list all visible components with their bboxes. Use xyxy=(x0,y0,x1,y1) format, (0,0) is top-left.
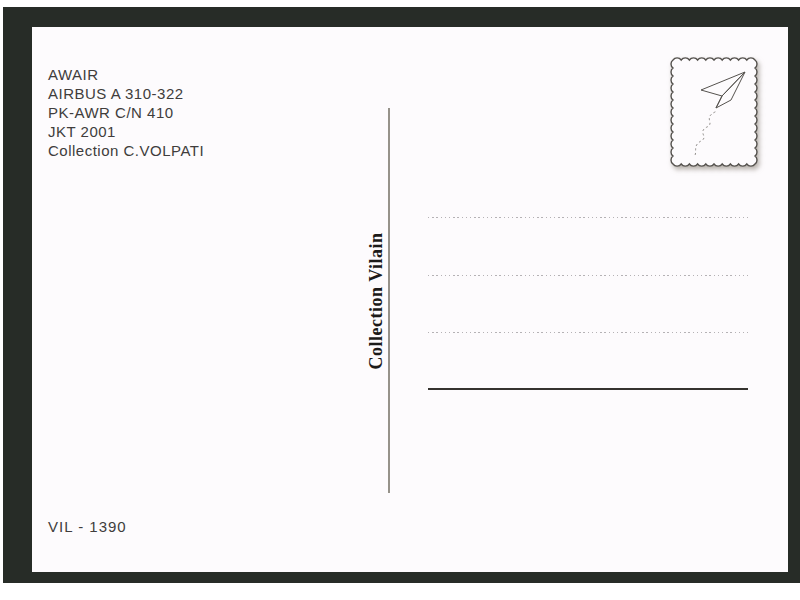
postcard-back: AWAIR AIRBUS A 310-322 PK-AWR C/N 410 JK… xyxy=(32,27,788,572)
address-line-1 xyxy=(428,217,748,219)
registration-number: PK-AWR C/N 410 xyxy=(48,103,204,122)
vertical-divider-line xyxy=(388,108,390,493)
postcard-photo: AWAIR AIRBUS A 310-322 PK-AWR C/N 410 JK… xyxy=(0,0,800,600)
publisher-label: Collection Vilain xyxy=(365,201,387,401)
address-bottom-line xyxy=(428,388,748,390)
paper-airplane-icon xyxy=(665,52,763,172)
location-year: JKT 2001 xyxy=(48,122,204,141)
aircraft-type: AIRBUS A 310-322 xyxy=(48,84,204,103)
address-line-3 xyxy=(428,332,748,334)
caption-block: AWAIR AIRBUS A 310-322 PK-AWR C/N 410 JK… xyxy=(48,65,204,160)
stamp-box xyxy=(665,52,763,172)
photo-credit: Collection C.VOLPATI xyxy=(48,141,204,160)
catalog-number: VIL - 1390 xyxy=(48,518,127,535)
address-line-2 xyxy=(428,275,748,277)
airline-name: AWAIR xyxy=(48,65,204,84)
